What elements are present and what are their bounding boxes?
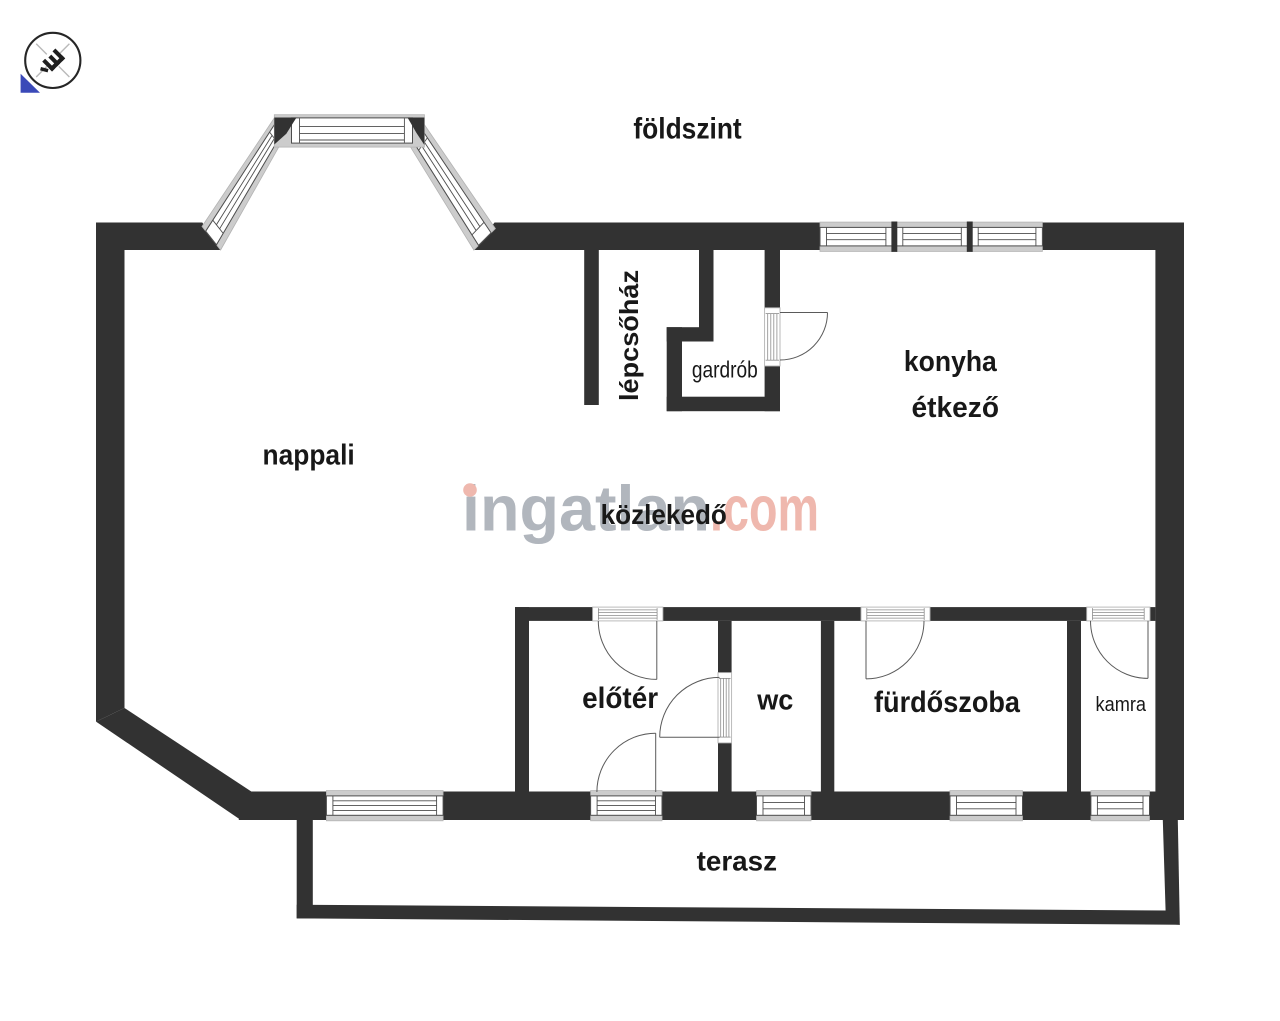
svg-text:konyha: konyha — [904, 346, 998, 378]
svg-text:kamra: kamra — [1096, 694, 1147, 716]
svg-text:földszint: földszint — [633, 113, 741, 146]
svg-text:nappali: nappali — [263, 439, 355, 471]
svg-text:lépcsőház: lépcsőház — [614, 270, 644, 401]
svg-text:közlekedő: közlekedő — [601, 499, 727, 530]
svg-text:terasz: terasz — [697, 846, 777, 877]
svg-text:wc: wc — [756, 685, 793, 717]
svg-text:előtér: előtér — [582, 682, 658, 715]
svg-text:étkező: étkező — [912, 392, 1000, 424]
svg-text:gardrób: gardrób — [692, 357, 758, 383]
svg-text:fürdőszoba: fürdőszoba — [874, 686, 1020, 719]
